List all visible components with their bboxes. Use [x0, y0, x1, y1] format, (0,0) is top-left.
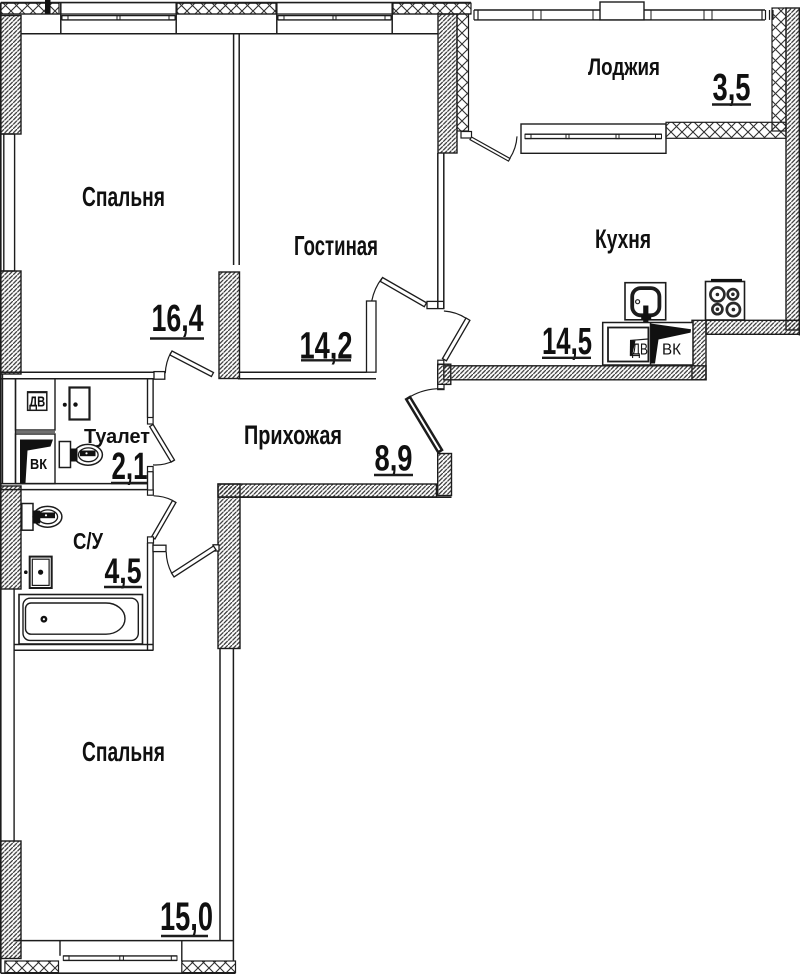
svg-text:8,9: 8,9: [375, 438, 413, 479]
svg-text:ВК: ВК: [662, 342, 682, 359]
svg-text:15,0: 15,0: [160, 895, 213, 939]
svg-text:Гостиная: Гостиная: [294, 230, 378, 261]
svg-text:3,5: 3,5: [713, 67, 751, 109]
svg-text:Спальня: Спальня: [82, 181, 165, 212]
svg-text:4,5: 4,5: [105, 552, 142, 591]
svg-text:С/У: С/У: [73, 528, 104, 554]
svg-text:Спальня: Спальня: [82, 736, 165, 767]
svg-text:2,1: 2,1: [112, 446, 148, 488]
svg-text:ВК: ВК: [30, 456, 48, 473]
svg-text:Лоджия: Лоджия: [588, 54, 660, 81]
svg-text:16,4: 16,4: [152, 298, 204, 340]
svg-text:Кухня: Кухня: [595, 224, 651, 254]
svg-text:ДВ: ДВ: [29, 395, 45, 411]
svg-text:ДВ: ДВ: [632, 342, 648, 359]
svg-text:Туалет: Туалет: [84, 425, 150, 448]
svg-text:Прихожая: Прихожая: [244, 420, 342, 450]
